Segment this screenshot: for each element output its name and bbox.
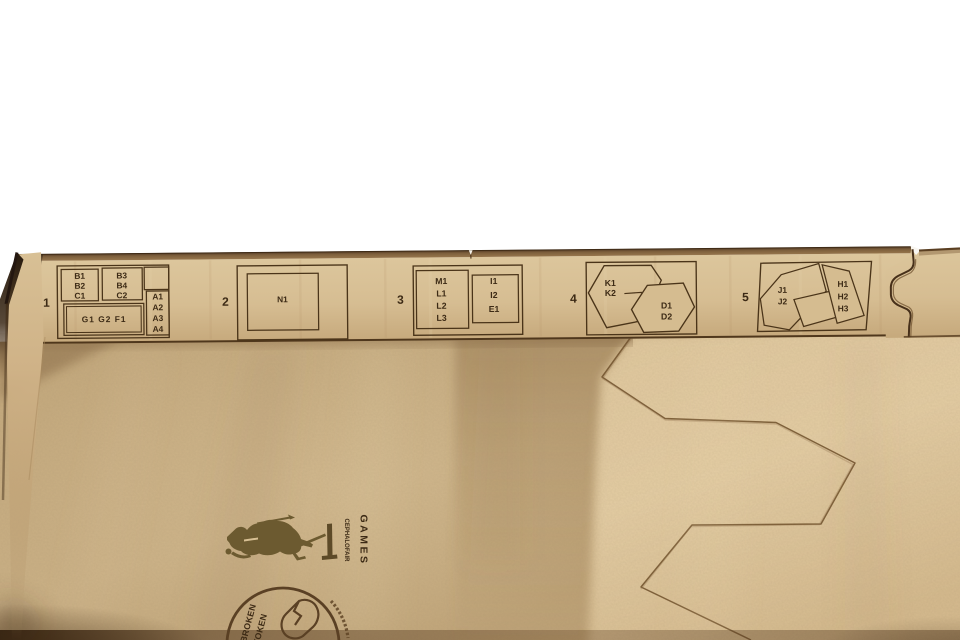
- svg-text:5: 5: [742, 290, 749, 304]
- svg-text:B4: B4: [116, 280, 127, 290]
- svg-text:A2: A2: [152, 302, 163, 312]
- svg-text:K2: K2: [605, 288, 616, 298]
- svg-text:CEPHALOFAIR: CEPHALOFAIR: [343, 518, 349, 562]
- svg-text:B1: B1: [74, 271, 85, 281]
- svg-text:1: 1: [43, 296, 50, 310]
- svg-text:C1: C1: [74, 291, 85, 301]
- svg-text:L3: L3: [436, 313, 446, 323]
- svg-text:H1: H1: [837, 279, 848, 289]
- svg-text:A4: A4: [153, 324, 164, 334]
- svg-text:B2: B2: [74, 281, 85, 291]
- svg-text:2: 2: [222, 295, 229, 309]
- svg-text:A1: A1: [152, 291, 163, 301]
- svg-text:H2: H2: [838, 291, 849, 301]
- svg-text:J2: J2: [778, 296, 788, 306]
- svg-text:M1: M1: [435, 276, 447, 286]
- svg-text:H3: H3: [838, 303, 849, 313]
- svg-text:D1: D1: [661, 300, 672, 310]
- svg-text:B3: B3: [116, 270, 127, 280]
- svg-text:3: 3: [397, 293, 404, 307]
- svg-text:G1 G2 F1: G1 G2 F1: [82, 314, 127, 324]
- svg-text:I1: I1: [490, 276, 498, 286]
- svg-text:GAMES: GAMES: [358, 514, 370, 565]
- svg-text:L1: L1: [436, 288, 446, 298]
- svg-text:N1: N1: [277, 294, 288, 304]
- svg-text:E1: E1: [489, 304, 500, 314]
- svg-text:L2: L2: [436, 301, 446, 311]
- svg-text:I2: I2: [490, 290, 498, 300]
- svg-text:J1: J1: [778, 285, 788, 295]
- svg-text:C2: C2: [116, 290, 127, 300]
- svg-text:K1: K1: [605, 278, 616, 288]
- svg-text:A3: A3: [152, 313, 163, 323]
- svg-text:D2: D2: [661, 311, 672, 321]
- svg-text:4: 4: [570, 292, 577, 306]
